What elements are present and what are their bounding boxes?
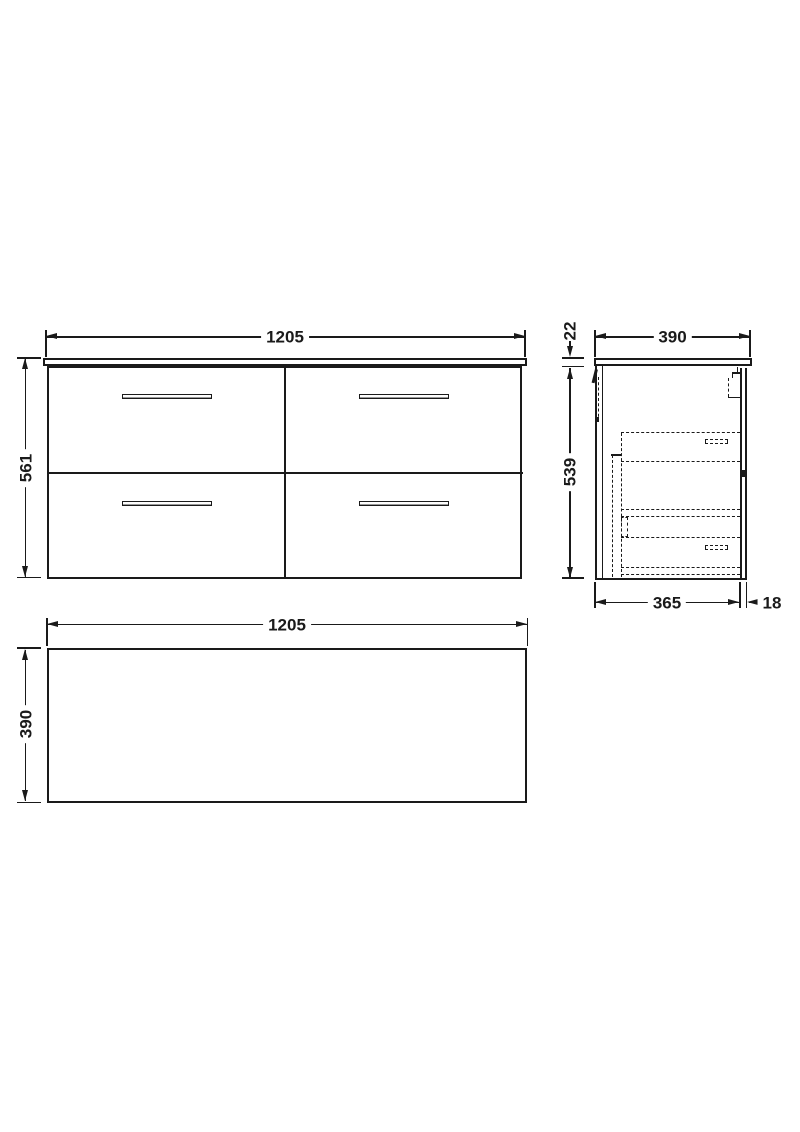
- arrow-left-icon: [47, 621, 58, 627]
- plan-width-label: 1205: [263, 615, 311, 634]
- arrow-right-icon: [516, 621, 527, 627]
- arrow-up-icon: [22, 649, 28, 660]
- plan-depth-tick-bottom: [17, 802, 41, 804]
- plan-depth-label: 390: [16, 705, 35, 743]
- arrow-down-icon: [22, 790, 28, 801]
- technical-drawing-canvas: 1205 561 390 22: [0, 0, 800, 1132]
- plan-view: 1205 390: [0, 0, 800, 1132]
- plan-depth-tick-top: [17, 647, 41, 649]
- plan-worktop-outline: [47, 648, 527, 803]
